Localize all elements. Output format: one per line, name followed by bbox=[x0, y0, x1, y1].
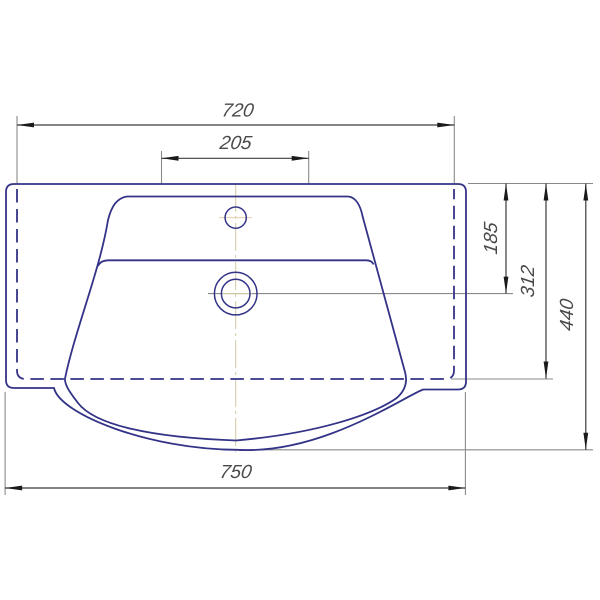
svg-text:720: 720 bbox=[220, 101, 255, 122]
svg-text:440: 440 bbox=[557, 297, 578, 332]
svg-text:185: 185 bbox=[481, 221, 502, 256]
svg-text:312: 312 bbox=[518, 264, 539, 299]
svg-text:205: 205 bbox=[217, 133, 253, 154]
svg-text:750: 750 bbox=[218, 462, 253, 483]
